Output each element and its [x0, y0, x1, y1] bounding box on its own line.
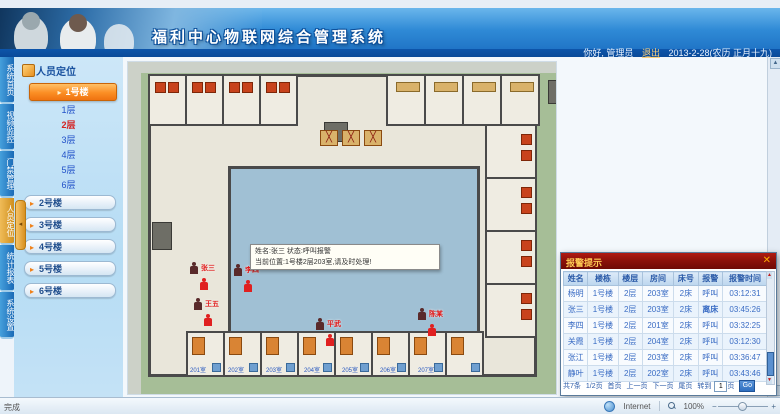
- page-number-input[interactable]: [714, 381, 727, 392]
- resident-name-label: 陈某: [429, 309, 443, 319]
- sidebar-panel-title: 人员定位: [36, 63, 76, 77]
- room-number-label: 204室: [304, 365, 320, 374]
- floorplan[interactable]: ╳╳╳201室202室203室204室205室206室207室 张三李四王五平武…: [128, 62, 556, 394]
- alarm-person-icon[interactable]: [326, 334, 334, 346]
- alarm-table: 姓名楼栋楼层房间床号报警报警时间 杨明1号楼2层203室2床呼叫03:12:31…: [563, 271, 768, 382]
- status-bar: 完成 Internet 100% − +: [0, 397, 780, 414]
- floor-list: 1层2层3层4层5层6层: [14, 103, 123, 193]
- furniture-bed: [340, 337, 353, 355]
- furniture-desk: [510, 82, 534, 92]
- furniture-red: [521, 187, 532, 198]
- furniture-red: [266, 82, 277, 93]
- building-label: 6号楼: [39, 286, 62, 296]
- nav-tab-1[interactable]: 系统首页: [0, 57, 14, 104]
- status-right-cluster: Internet 100% − +: [604, 400, 774, 412]
- furniture-red: [279, 82, 290, 93]
- road-strip: [128, 62, 556, 73]
- table-cell: 2床: [674, 318, 698, 334]
- scroll-up-arrow[interactable]: ▲: [767, 272, 772, 279]
- sidebar-panel: 人员定位 ▸1号楼 1层2层3层4层5层6层 ▸2号楼▸3号楼▸4号楼▸5号楼▸…: [14, 57, 124, 397]
- prev-page-link[interactable]: 上一页: [627, 383, 648, 390]
- chevron-right-icon: ▸: [30, 284, 34, 299]
- table-cell: 1号楼: [588, 302, 618, 318]
- furniture-red: [521, 134, 532, 145]
- chevron-right-icon: ▸: [30, 196, 34, 211]
- furniture-red: [229, 82, 240, 93]
- zoom-out-icon[interactable]: −: [712, 402, 717, 411]
- building-label: 4号楼: [39, 242, 62, 252]
- page-unit: 页: [727, 383, 734, 390]
- stair-block: [548, 80, 556, 104]
- furniture-toilet: [323, 363, 332, 372]
- floor-item-2层[interactable]: 2层: [14, 118, 123, 133]
- nav-tab-5[interactable]: 统计报表: [0, 245, 14, 292]
- floor-item-6层[interactable]: 6层: [14, 178, 123, 193]
- table-row[interactable]: 张江1号楼2层203室2床呼叫03:36:47: [564, 350, 768, 366]
- table-cell: 2床: [674, 350, 698, 366]
- room-cell: [445, 331, 484, 377]
- tooltip-line1: 姓名:张三 状态:呼叫报警: [255, 247, 435, 258]
- furniture-bed: [414, 337, 427, 355]
- room-cell: [259, 74, 298, 126]
- resident-icon[interactable]: [194, 298, 202, 310]
- scroll-thumb[interactable]: [767, 352, 774, 376]
- greeting-text: 你好, 管理员: [583, 48, 633, 58]
- stair-block: [152, 222, 172, 250]
- pagination-bar: 共7条 1/2页 首页 上一页 下一页 尾页 转到页 Go: [563, 380, 768, 393]
- table-cell: 03:32:25: [722, 318, 767, 334]
- room-number-label: 206室: [380, 365, 396, 374]
- room-number-label: 205室: [342, 365, 358, 374]
- table-cell: 呼叫: [698, 350, 722, 366]
- table-cell: 2床: [674, 286, 698, 302]
- room-cell: [185, 74, 224, 126]
- popup-titlebar[interactable]: 报警提示 ✕: [561, 253, 776, 269]
- table-cell: 201室: [642, 318, 673, 334]
- room-number-label: 207室: [418, 365, 434, 374]
- furniture-bed: [451, 337, 464, 355]
- table-row[interactable]: 张三1号楼2层203室2床离床03:45:26: [564, 302, 768, 318]
- floor-item-3层[interactable]: 3层: [14, 133, 123, 148]
- resident-name-label: 张三: [201, 263, 215, 273]
- person-locate-icon: [22, 64, 35, 77]
- dining-table: ╳: [342, 130, 360, 146]
- furniture-red: [521, 203, 532, 214]
- table-cell: 03:45:26: [722, 302, 767, 318]
- zoom-level[interactable]: 100%: [684, 402, 704, 411]
- tooltip-line2: 当前位置:1号楼2层203室,请及时处理!: [255, 258, 435, 269]
- furniture-red: [521, 309, 532, 320]
- furniture-red: [205, 82, 216, 93]
- table-cell: 2层: [618, 302, 642, 318]
- nav-tab-3[interactable]: 门禁管理: [0, 151, 14, 198]
- building-1-button[interactable]: ▸1号楼: [29, 83, 117, 101]
- table-row[interactable]: 杨明1号楼2层203室2床呼叫03:12:31: [564, 286, 768, 302]
- popup-scrollbar[interactable]: ▲ ▼: [766, 271, 775, 385]
- table-cell: 2层: [618, 350, 642, 366]
- chevron-right-icon: ▸: [30, 218, 34, 233]
- building-1-label: 1号楼: [66, 87, 89, 97]
- furniture-red: [168, 82, 179, 93]
- sidebar-panel-title-text: 人员定位: [36, 67, 76, 78]
- table-cell: 1号楼: [588, 286, 618, 302]
- table-row[interactable]: 李四1号楼2层201室2床呼叫03:32:25: [564, 318, 768, 334]
- column-header[interactable]: 房间: [642, 272, 673, 286]
- person-tooltip: 姓名:张三 状态:呼叫报警 当前位置:1号楼2层203室,请及时处理!: [250, 244, 440, 270]
- room-number-label: 203室: [266, 365, 282, 374]
- resident-icon[interactable]: [316, 318, 324, 330]
- furniture-toilet: [212, 363, 221, 372]
- table-cell: 张三: [564, 302, 588, 318]
- alarm-popup: 报警提示 ✕ 姓名楼栋楼层房间床号报警报警时间 杨明1号楼2层203室2床呼叫0…: [560, 252, 777, 396]
- first-page-link[interactable]: 首页: [608, 383, 622, 390]
- table-cell: 2层: [618, 318, 642, 334]
- column-header[interactable]: 报警时间: [722, 272, 767, 286]
- furniture-toilet: [434, 363, 443, 372]
- column-header[interactable]: 楼栋: [588, 272, 618, 286]
- table-cell: 2层: [618, 286, 642, 302]
- building-button-4号楼[interactable]: ▸4号楼: [24, 239, 116, 254]
- furniture-red: [155, 82, 166, 93]
- building-button-3号楼[interactable]: ▸3号楼: [24, 217, 116, 232]
- zone-label: Internet: [623, 402, 650, 411]
- table-cell: 2床: [674, 334, 698, 350]
- table-row[interactable]: 关霞1号楼2层204室2床呼叫03:12:30: [564, 334, 768, 350]
- go-button[interactable]: Go: [739, 380, 755, 392]
- total-count: 共7条: [563, 383, 581, 390]
- floor-item-1层[interactable]: 1层: [14, 103, 123, 118]
- table-cell: 李四: [564, 318, 588, 334]
- table-cell: 杨明: [564, 286, 588, 302]
- close-icon[interactable]: ✕: [763, 255, 771, 266]
- building-button-6号楼[interactable]: ▸6号楼: [24, 283, 116, 298]
- furniture-toilet: [286, 363, 295, 372]
- room-cell: [500, 74, 540, 126]
- table-cell: 03:12:30: [722, 334, 767, 350]
- resident-icon[interactable]: [234, 264, 242, 276]
- table-cell: 1号楼: [588, 318, 618, 334]
- nav-tab-2[interactable]: 视频监控: [0, 104, 14, 151]
- resident-name-label: 平武: [327, 319, 341, 329]
- alarm-person-icon[interactable]: [204, 314, 212, 326]
- next-page-link[interactable]: 下一页: [652, 383, 673, 390]
- building-button-2号楼[interactable]: ▸2号楼: [24, 195, 116, 210]
- resident-icon[interactable]: [418, 308, 426, 320]
- table-cell: 离床: [698, 302, 722, 318]
- table-cell: 203室: [642, 286, 673, 302]
- furniture-desk: [434, 82, 458, 92]
- table-cell: 2层: [618, 334, 642, 350]
- sidebar-collapse-handle[interactable]: ◂: [15, 200, 26, 250]
- table-cell: 03:12:31: [722, 286, 767, 302]
- column-header[interactable]: 床号: [674, 272, 698, 286]
- column-header[interactable]: 楼层: [618, 272, 642, 286]
- date-text: 2013-2-28(农历 正月十九): [668, 48, 772, 58]
- room-cell: [148, 74, 187, 126]
- dining-table: ╳: [364, 130, 382, 146]
- app-title: 福利中心物联网综合管理系统: [152, 26, 386, 47]
- resident-name-label: 王五: [205, 299, 219, 309]
- room-number-label: 201室: [190, 365, 206, 374]
- furniture-red: [521, 150, 532, 161]
- room-cell: [462, 74, 502, 126]
- divider: [659, 401, 660, 411]
- page-info: 1/2页: [586, 383, 603, 390]
- table-cell: 关霞: [564, 334, 588, 350]
- table-cell: 03:36:47: [722, 350, 767, 366]
- user-bar: 你好, 管理员 退出 2013-2-28(农历 正月十九): [577, 46, 772, 58]
- floor-item-4层[interactable]: 4层: [14, 148, 123, 163]
- floor-item-5层[interactable]: 5层: [14, 163, 123, 178]
- room-cell: [386, 74, 426, 126]
- table-cell: 呼叫: [698, 286, 722, 302]
- building-button-5号楼[interactable]: ▸5号楼: [24, 261, 116, 276]
- nav-tab-4[interactable]: 人员定位: [0, 198, 14, 245]
- slider-thumb[interactable]: [738, 402, 747, 411]
- scroll-up-arrow[interactable]: ▲: [770, 58, 780, 69]
- nav-tab-6[interactable]: 系统设置: [0, 292, 14, 339]
- table-cell: 1号楼: [588, 350, 618, 366]
- room-cell: [424, 74, 464, 126]
- status-text: 完成: [4, 402, 20, 413]
- chevron-right-icon: ▸: [30, 262, 34, 277]
- furniture-toilet: [397, 363, 406, 372]
- furniture-desk: [472, 82, 496, 92]
- furniture-toilet: [471, 363, 480, 372]
- furniture-bed: [266, 337, 279, 355]
- resident-icon[interactable]: [190, 262, 198, 274]
- room-number-label: 202室: [228, 365, 244, 374]
- table-cell: 203室: [642, 350, 673, 366]
- table-cell: 呼叫: [698, 318, 722, 334]
- column-header[interactable]: 姓名: [564, 272, 588, 286]
- furniture-red: [521, 256, 532, 267]
- logout-link[interactable]: 退出: [642, 48, 660, 58]
- column-header[interactable]: 报警: [698, 272, 722, 286]
- table-cell: 204室: [642, 334, 673, 350]
- zoom-magnifier-icon[interactable]: [668, 402, 676, 410]
- zoom-in-icon[interactable]: +: [771, 402, 776, 411]
- furniture-toilet: [360, 363, 369, 372]
- furniture-toilet: [249, 363, 258, 372]
- alarm-person-icon[interactable]: [428, 324, 436, 336]
- furniture-red: [521, 240, 532, 251]
- room-cell: [222, 74, 261, 126]
- popup-title: 报警提示: [566, 256, 602, 269]
- last-page-link[interactable]: 尾页: [678, 383, 692, 390]
- room-cell: [485, 230, 537, 285]
- room-cell: [485, 124, 537, 179]
- alarm-person-icon[interactable]: [200, 278, 208, 290]
- table-cell: 张江: [564, 350, 588, 366]
- vertical-nav-tabs: 系统首页视频监控门禁管理人员定位统计报表系统设置: [0, 57, 14, 397]
- table-cell: 2床: [674, 302, 698, 318]
- table-cell: 呼叫: [698, 334, 722, 350]
- road-strip: [128, 62, 141, 394]
- furniture-red: [242, 82, 253, 93]
- room-cell: [485, 177, 537, 232]
- table-cell: 1号楼: [588, 334, 618, 350]
- internet-zone-icon: [604, 401, 615, 412]
- chevron-right-icon: ▸: [57, 88, 61, 97]
- chevron-right-icon: ▸: [30, 240, 34, 255]
- alarm-person-icon[interactable]: [244, 280, 252, 292]
- furniture-bed: [303, 337, 316, 355]
- building-label: 2号楼: [39, 198, 62, 208]
- building-label: 3号楼: [39, 220, 62, 230]
- furniture-bed: [192, 337, 205, 355]
- zoom-slider[interactable]: − +: [712, 401, 774, 411]
- furniture-bed: [377, 337, 390, 355]
- furniture-bed: [229, 337, 242, 355]
- furniture-red: [192, 82, 203, 93]
- room-cell: [485, 283, 537, 338]
- dining-table: ╳: [320, 130, 338, 146]
- building-label: 5号楼: [39, 264, 62, 274]
- table-cell: 203室: [642, 302, 673, 318]
- jump-label: 转到: [697, 383, 711, 390]
- furniture-desk: [396, 82, 420, 92]
- furniture-red: [521, 293, 532, 304]
